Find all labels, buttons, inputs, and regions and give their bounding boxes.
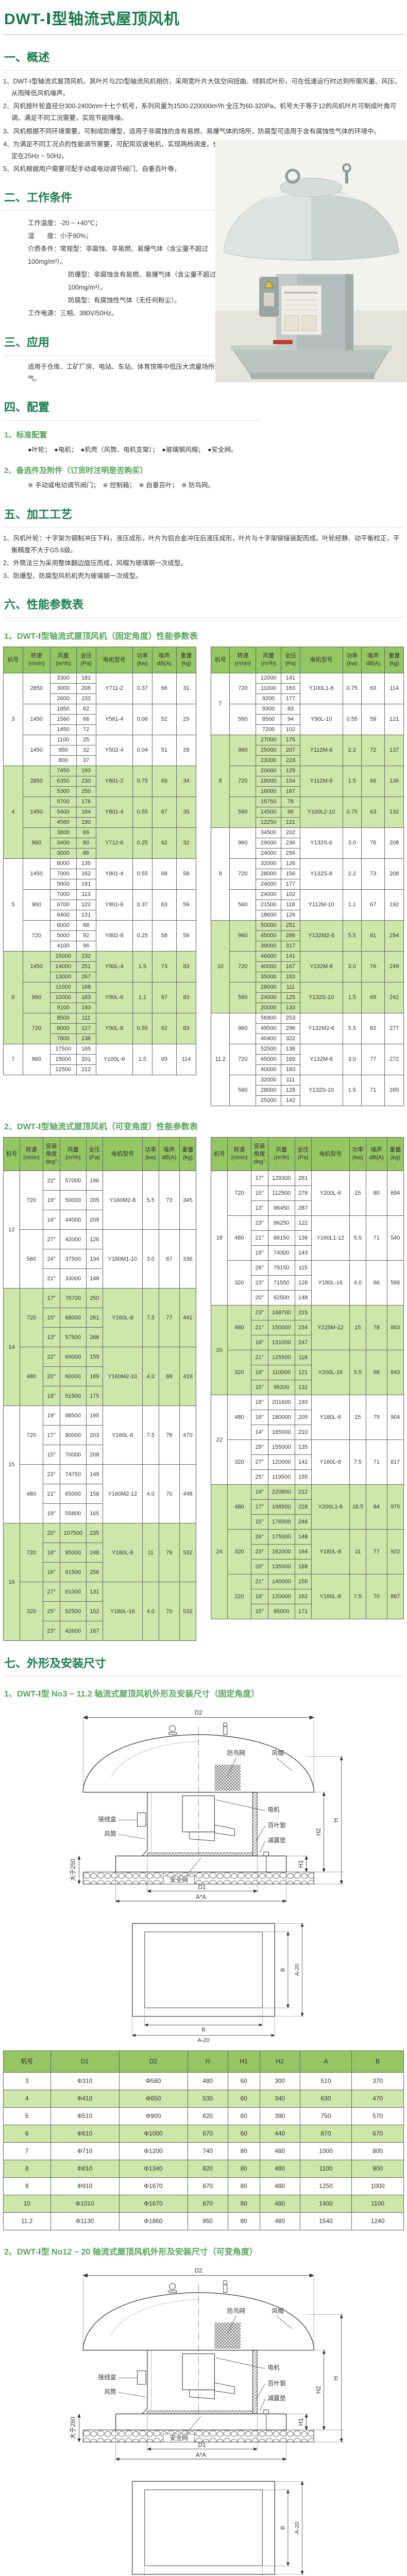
table-cell: 7000	[50, 869, 76, 879]
data-row: 72052500138Y132M-83.077272	[211, 1044, 404, 1054]
table-cell: 20°	[43, 1367, 60, 1386]
table-cell: 4100	[50, 941, 76, 951]
col-header: 功率 (kw)	[349, 1137, 366, 1171]
table-cell: 71	[366, 1440, 387, 1485]
table-cell: 1000	[352, 2177, 404, 2195]
table-cell: 70	[159, 1465, 179, 1523]
col-header: 重量 (kg)	[387, 1137, 404, 1171]
table-cell: 322	[281, 1033, 300, 1044]
table-cell: 115	[295, 1261, 311, 1276]
table-cell: Y801-4	[96, 796, 132, 827]
col-header: 全压 (Pa)	[295, 1137, 311, 1171]
cross-section-drawing: D2 防鸟网 风帽 接线盒 风筒 电机 百叶窗 减震垫 安全网 大于250 H1…	[13, 2264, 394, 2465]
table-cell: 16000	[256, 786, 281, 796]
table-cell: 15°	[251, 1604, 268, 1619]
junction-box-label: 接线盒	[98, 1816, 116, 1823]
table-cell: 188	[295, 1560, 311, 1574]
table-cell: 800	[50, 755, 76, 766]
table-cell: 21°	[251, 1350, 268, 1365]
table-cell: 140000	[268, 1574, 295, 1589]
data-row: 10Φ1010Φ16708708048014001100	[4, 2195, 404, 2212]
table-cell: 11	[142, 1523, 159, 1582]
table-cell: Y112M-10	[300, 889, 343, 920]
table-cell: 74750	[60, 1465, 86, 1484]
data-row: 48023°74750149Y160M2-124.070448	[4, 1465, 196, 1484]
process-item: 1、风机叶轮：十字架为钢制冲压下料，液压成形，叶片为铝合金冲压后液压成形，叶片与…	[3, 533, 404, 556]
table-cell: 5700	[50, 796, 76, 807]
table-cell: 242	[385, 982, 404, 1013]
table-cell: 480	[20, 1465, 43, 1523]
table-cell: 4580	[50, 817, 76, 827]
table-cell: Y801-6	[96, 889, 132, 920]
table-cell: 70000	[60, 1445, 86, 1465]
table-cell: 73	[159, 1171, 179, 1230]
table-cell: 193	[295, 1395, 311, 1410]
process-item: 3、防爆型、防腐型风机机壳为玻璃钢一次成型。	[3, 570, 404, 582]
table-cell: 118	[281, 900, 300, 910]
table-cell: 24°	[43, 1249, 60, 1269]
table-cell: 193	[76, 1003, 96, 1013]
table-cell: 863	[387, 1306, 404, 1350]
col-header: 噪声 dB(A)	[159, 1137, 179, 1171]
table-cell: 154	[281, 776, 300, 786]
table-cell: 26°	[251, 1530, 268, 1545]
table-cell: Φ1860	[119, 2212, 188, 2230]
table-cell: 125500	[268, 1350, 295, 1365]
header-row: 机号转速 (r/min)安装 角度 deg°风量 (m³/h)全压 (Pa)电机…	[211, 1137, 404, 1171]
table-cell: 4.0	[349, 1261, 366, 1306]
table-cell: 8500	[256, 714, 281, 724]
data-row: 1450165062Y561-40.065229	[4, 704, 196, 714]
table-cell: 15	[349, 1395, 366, 1440]
table-cell: 59	[177, 920, 196, 951]
table-cell: 232	[76, 951, 96, 961]
table-cell: 80	[228, 2177, 260, 2195]
table-cell: Y132S-10	[300, 982, 343, 1013]
table-cell: 33000	[60, 1269, 86, 1289]
table-cell: 193	[76, 766, 96, 776]
data-row: 14505700176Y801-40.556735	[4, 796, 196, 807]
table-cell: 532	[179, 1523, 196, 1582]
table-cell: 18600	[256, 910, 281, 920]
table-cell: Y180L-8	[103, 1523, 142, 1582]
table-cell: 904	[387, 1395, 404, 1440]
table-cell: 17°	[251, 1171, 268, 1186]
bird-net-label: 防鸟网	[227, 2307, 245, 2314]
table-cell: Φ580	[119, 2072, 188, 2090]
table-cell: 336	[179, 1230, 196, 1289]
table-cell: 191	[76, 879, 96, 889]
table-cell: 131000	[268, 1335, 295, 1350]
table-cell: 3.0	[142, 1230, 159, 1289]
table-cell: 133	[281, 1003, 300, 1013]
table-cell: 887	[387, 1574, 404, 1619]
table-cell: 121	[281, 817, 300, 827]
table-cell: 60	[228, 2107, 260, 2125]
table-cell: 3.0	[343, 827, 361, 858]
table-cell: 228	[281, 755, 300, 766]
table-cell: 2.2	[343, 735, 361, 766]
table-cell: 9100	[50, 1003, 76, 1013]
table-cell: 1450	[23, 796, 50, 827]
table-cell: 586	[387, 1261, 404, 1306]
table-cell: 370	[352, 2072, 404, 2090]
table-cell: 80	[228, 2160, 260, 2177]
table-cell: Φ1000	[119, 2125, 188, 2142]
table-cell: 18°	[251, 1395, 268, 1410]
plan-b-side-label: B	[280, 2526, 286, 2529]
table-cell: 176500	[268, 1515, 295, 1530]
table-cell: 720	[230, 1044, 256, 1075]
table-cell: 63	[362, 796, 385, 827]
table-cell: 88	[76, 920, 96, 930]
table-cell: 0.55	[132, 858, 152, 889]
table-cell: 58	[152, 920, 176, 951]
table-cell: 419	[179, 1347, 196, 1406]
fan-base	[231, 346, 392, 379]
table-cell: 212	[76, 1064, 96, 1075]
table-cell: 50000	[256, 920, 281, 930]
table-cell: 15°	[43, 1445, 60, 1465]
dim-h1-label: H1	[298, 2418, 304, 2426]
table-cell: 13°	[251, 1201, 268, 1216]
table-cell: 1560	[50, 714, 76, 724]
table-cell: 960	[23, 827, 50, 858]
table-cell: Y801-4	[96, 858, 132, 889]
drawing-geometry	[79, 2275, 344, 2461]
table-cell: 21°	[43, 1484, 60, 1504]
table-cell: 4.0	[142, 1582, 159, 1641]
col-header: 机号	[4, 1137, 20, 1171]
table-cell: 261	[86, 1308, 103, 1328]
table-cell: Φ610	[50, 2125, 119, 2142]
plan-geometry	[132, 2481, 304, 2576]
table-cell: 340	[260, 2090, 300, 2107]
table-cell: Y180L-16	[311, 1261, 349, 1306]
table-cell: 68	[366, 1350, 387, 1395]
table-cell: 72	[362, 735, 385, 766]
col-header: A	[300, 2051, 352, 2072]
table-cell: 32	[177, 827, 196, 858]
table-cell: 96450	[268, 1201, 295, 1216]
plan-b-label: B	[201, 2027, 205, 2033]
perf-var-tables: 机号转速 (r/min)安装 角度 deg°风量 (m³/h)全压 (Pa)电机…	[3, 1137, 404, 1641]
table-cell: 71	[366, 1216, 387, 1261]
table-cell: 532	[179, 1582, 196, 1641]
data-row: 1472017°76700250Y160L-87.577441	[4, 1289, 196, 1308]
table-cell: 5300	[50, 786, 76, 796]
data-row: 3Φ310Φ58048060300510370	[4, 2072, 404, 2090]
table-cell: 3.0	[343, 951, 361, 982]
table-cell: 152	[86, 1602, 103, 1621]
table-cell: 171	[295, 1604, 311, 1619]
table-cell: 177	[281, 693, 300, 704]
table-cell: 18	[211, 1171, 228, 1306]
table-cell: 220800	[268, 1485, 295, 1500]
table-cell: 14500	[256, 807, 281, 817]
table-cell: 6000	[50, 920, 76, 930]
table-cell: 960	[230, 827, 256, 858]
table-cell: 58	[177, 858, 196, 889]
table-cell: 480	[228, 1395, 251, 1440]
header-row: 机号D1D2HH1H2AB	[4, 2051, 404, 2072]
table-cell: 59	[362, 704, 385, 735]
table-cell: 60	[228, 2072, 260, 2090]
config-opt-title: 2、备选件及附件（订货时注明是否购买）	[4, 465, 404, 476]
data-row: 796017500165Y100L-61.569114	[4, 1044, 196, 1054]
table-cell: 208	[385, 858, 404, 889]
table-cell: 670	[352, 2125, 404, 2142]
table-cell: 80000	[60, 1426, 86, 1445]
table-cell: 126	[86, 1230, 103, 1249]
table-cell: Y180L-16	[103, 1582, 142, 1641]
table-cell: 5.5	[343, 1013, 361, 1044]
table-cell: 296	[281, 1023, 300, 1033]
col-header: 机号	[211, 1137, 228, 1171]
table-cell: 45000	[256, 930, 281, 941]
table-cell: 66	[366, 1261, 387, 1306]
table-cell: 29	[177, 735, 196, 766]
table-cell: 2850	[23, 766, 50, 796]
table-cell: 5600	[50, 879, 76, 889]
table-cell: 208	[385, 827, 404, 858]
table-cell: 82	[362, 1013, 385, 1044]
table-cell: 720	[230, 951, 256, 982]
table-cell: 31	[177, 673, 196, 704]
table-cell: Φ910	[50, 2177, 119, 2195]
table-cell: 192	[385, 889, 404, 920]
table-cell: 183	[76, 992, 96, 1003]
table-cell: 9	[211, 827, 230, 920]
table-cell: 150000	[268, 1320, 295, 1335]
table-cell: 29000	[256, 838, 281, 848]
table-cell: 1000	[300, 2142, 352, 2160]
table-cell: 256	[281, 848, 300, 858]
table-cell: 265	[385, 1075, 404, 1106]
table-cell: 76	[362, 827, 385, 858]
motor-label: 电机	[268, 1806, 280, 1814]
table-cell: 277	[385, 1013, 404, 1044]
table-cell: 8000	[50, 858, 76, 869]
table-cell: 205	[295, 1410, 311, 1425]
table-cell: 7.5	[142, 1406, 159, 1465]
table-cell: Y132S-6	[300, 827, 343, 858]
table-cell: 206	[76, 683, 96, 693]
table-cell: 6350	[50, 776, 76, 786]
table-cell: 15	[349, 1306, 366, 1350]
table-cell: 111	[281, 1075, 300, 1085]
table-cell: 18.5	[349, 1485, 366, 1530]
table-cell: Y132S-8	[300, 858, 343, 889]
table-cell: 57000	[60, 1171, 86, 1191]
table-cell: 68	[152, 858, 176, 889]
table-cell: 560	[230, 1075, 256, 1106]
table-cell: 12000	[256, 673, 281, 683]
table-cell: 19°	[251, 1246, 268, 1261]
table-cell: 960	[23, 1044, 50, 1075]
table-cell: 740	[188, 2142, 228, 2160]
table-cell: 84	[366, 1485, 387, 1530]
table-cell: 25000	[256, 1095, 281, 1106]
table-cell: 28000	[256, 1085, 281, 1095]
gt250-label: 大于250	[70, 1859, 77, 1881]
table-cell: 29°	[251, 1440, 268, 1455]
table-cell: 234	[295, 1320, 311, 1335]
table-cell: 73	[362, 858, 385, 889]
table-cell: 168	[76, 982, 96, 992]
table-cell: 164	[295, 1545, 311, 1560]
table-cell: 201600	[268, 1395, 295, 1410]
section-heading-performance: 六、性能参数表	[4, 596, 404, 618]
table-cell: 3800	[50, 827, 76, 838]
table-cell: 27°	[251, 1455, 268, 1470]
motor-label: 电机	[268, 2364, 280, 2371]
dim-d1-label: D1	[198, 2442, 206, 2448]
process-list: 1、风机叶轮：十字架为钢制冲压下料，液压成形，叶片为铝合金冲压后液压成形，叶片与…	[3, 533, 404, 583]
process-item: 2、外筒法兰为采用整体翻边旋压而成，风帽为玻璃钢一次成型。	[3, 557, 404, 569]
table-cell: 81	[362, 920, 385, 951]
table-cell: 540	[387, 1216, 404, 1261]
table-cell: 630	[300, 2090, 352, 2107]
table-cell: Y132M-8	[300, 951, 343, 982]
table-cell: Y160L-8	[311, 1440, 349, 1485]
table-cell: 18°	[251, 1589, 268, 1604]
mounting-plan-view: B A-20 B A-20	[23, 2472, 384, 2576]
table-cell: 52500	[256, 1044, 281, 1054]
table-cell: 900	[352, 2160, 404, 2177]
data-row: 428507450193Y801-20.756934	[4, 766, 196, 776]
table-cell: 256	[86, 1563, 103, 1582]
table-cell: 0.75	[132, 766, 152, 796]
table-cell: 6400	[50, 910, 76, 920]
table-cell: 127	[76, 1023, 96, 1033]
table-cell: 20°	[251, 1291, 268, 1306]
col-header: 功率 (kw)	[132, 647, 152, 673]
table-cell: 149	[86, 1465, 103, 1484]
table-cell: Φ1010	[50, 2195, 119, 2212]
table-cell: 134	[86, 1249, 103, 1269]
data-row: 48023°96250122Y160L1-125.571540	[211, 1216, 404, 1231]
data-row: 8Φ810Φ1340820804801100900	[4, 2160, 404, 2177]
table-cell: 510	[300, 2072, 352, 2090]
table-cell: 15000	[50, 1054, 76, 1064]
table-cell: 32000	[256, 1075, 281, 1085]
table-cell: 77	[362, 1044, 385, 1075]
table-cell: 61000	[60, 1582, 86, 1602]
table-cell: 40000	[256, 1064, 281, 1075]
table-cell: 870	[300, 2125, 352, 2142]
table-cell: 159	[86, 1347, 103, 1367]
table-cell: Φ900	[119, 2107, 188, 2125]
table-cell: 5	[4, 2107, 51, 2125]
table-cell: 480	[228, 1306, 251, 1350]
table-cell: 470	[179, 1406, 196, 1465]
table-cell: 236	[281, 838, 300, 848]
table-cell: 195	[86, 1406, 103, 1426]
table-cell: 85000	[268, 1604, 295, 1619]
table-cell: 1540	[300, 2212, 352, 2230]
col-header: 重量 (kg)	[385, 647, 404, 673]
table-cell: 530	[188, 2090, 228, 2107]
col-header: 噪声 dB(A)	[366, 1137, 387, 1171]
table-cell: 720	[230, 766, 256, 796]
overview-item: 3、风机根据不同环境需要，可制成防爆型，适用于非腐蚀的含有易燃、易爆气体的场所，…	[3, 126, 404, 138]
table-cell: 148	[86, 1269, 103, 1289]
table-cell: 71550	[268, 1276, 295, 1291]
table-cell: 560	[230, 704, 256, 735]
table-cell: 11	[349, 1530, 366, 1574]
col-header: 安装 角度 deg°	[43, 1137, 60, 1171]
section-heading-application: 三、应用	[4, 333, 205, 355]
table-cell: 70	[159, 1582, 179, 1641]
table-cell: Y132M-8	[300, 1044, 343, 1075]
table-cell: Y225M-12	[311, 1306, 349, 1350]
table-cell: 35	[177, 796, 196, 827]
data-row: 56027°42000126Y160M1-103.067336	[4, 1230, 196, 1249]
table-cell: 670	[188, 2125, 228, 2142]
table-cell: 57500	[60, 1328, 86, 1347]
table-cell: 209	[86, 1210, 103, 1230]
table-cell: 817	[387, 1440, 404, 1485]
table-cell: 205	[86, 1191, 103, 1210]
perf-table-var-right: 机号转速 (r/min)安装 角度 deg°风量 (m³/h)全压 (Pa)电机…	[211, 1137, 404, 1620]
table-cell: Y112M-8	[300, 766, 343, 796]
col-header: 机号	[4, 2051, 51, 2072]
table-cell: 320	[228, 1261, 251, 1306]
table-cell: 3300	[50, 673, 76, 683]
table-cell: 15	[349, 1171, 366, 1216]
col-header: 机号	[211, 647, 230, 673]
table-cell: Φ1670	[119, 2177, 188, 2195]
table-cell: 10	[211, 920, 230, 1013]
table-cell: 62	[152, 1013, 176, 1044]
outline-drawing-fixed: D2 防鸟网 风帽 接线盒 风筒 电机 百叶窗 减震垫 安全网 大于250 H1…	[3, 1706, 404, 2043]
table-cell: 9	[4, 2177, 51, 2195]
table-cell: 126	[295, 1276, 311, 1291]
table-cell: 111	[76, 1013, 96, 1023]
table-cell: 950	[188, 2212, 228, 2230]
table-cell: 16	[4, 1523, 20, 1641]
table-cell: 11000	[50, 982, 76, 992]
table-cell: 720	[228, 1171, 251, 1216]
col-header: D2	[119, 2051, 188, 2072]
data-row: 7208500111Y90L-80.556283	[4, 1013, 196, 1023]
table-cell: 165	[86, 1504, 103, 1523]
table-cell: 142	[281, 1095, 300, 1106]
data-row: 48022°69000159Y160M2-104.069419	[4, 1347, 196, 1367]
table-cell: 268	[86, 1328, 103, 1347]
table-cell: 70	[366, 1574, 387, 1619]
table-cell: 246	[295, 1515, 311, 1530]
table-cell: 870	[188, 2177, 228, 2195]
table-cell: Φ410	[50, 2090, 119, 2107]
drawing-geometry	[79, 1718, 344, 1903]
table-cell: 480	[260, 2160, 300, 2177]
data-row: 1572019°88500195Y160L-87.578470	[4, 1406, 196, 1426]
data-row: 896027000175Y112M-62.272137	[211, 735, 404, 745]
table-cell: 37	[76, 755, 96, 766]
table-cell: 7000	[50, 889, 76, 900]
table-cell: 16°	[251, 1410, 268, 1425]
table-cell: 8	[211, 735, 230, 827]
plan-b-side-label: B	[280, 1968, 286, 1972]
divider	[3, 355, 214, 356]
table-cell: 28000	[256, 982, 281, 992]
table-cell: 135000	[268, 1560, 295, 1574]
data-row: 7Φ710Φ1200740804801000800	[4, 2142, 404, 2160]
table-cell: 165000	[268, 1425, 295, 1440]
condition-line: 防腐型：有腐蚀性气体（无任何粉尘）。	[3, 294, 219, 307]
